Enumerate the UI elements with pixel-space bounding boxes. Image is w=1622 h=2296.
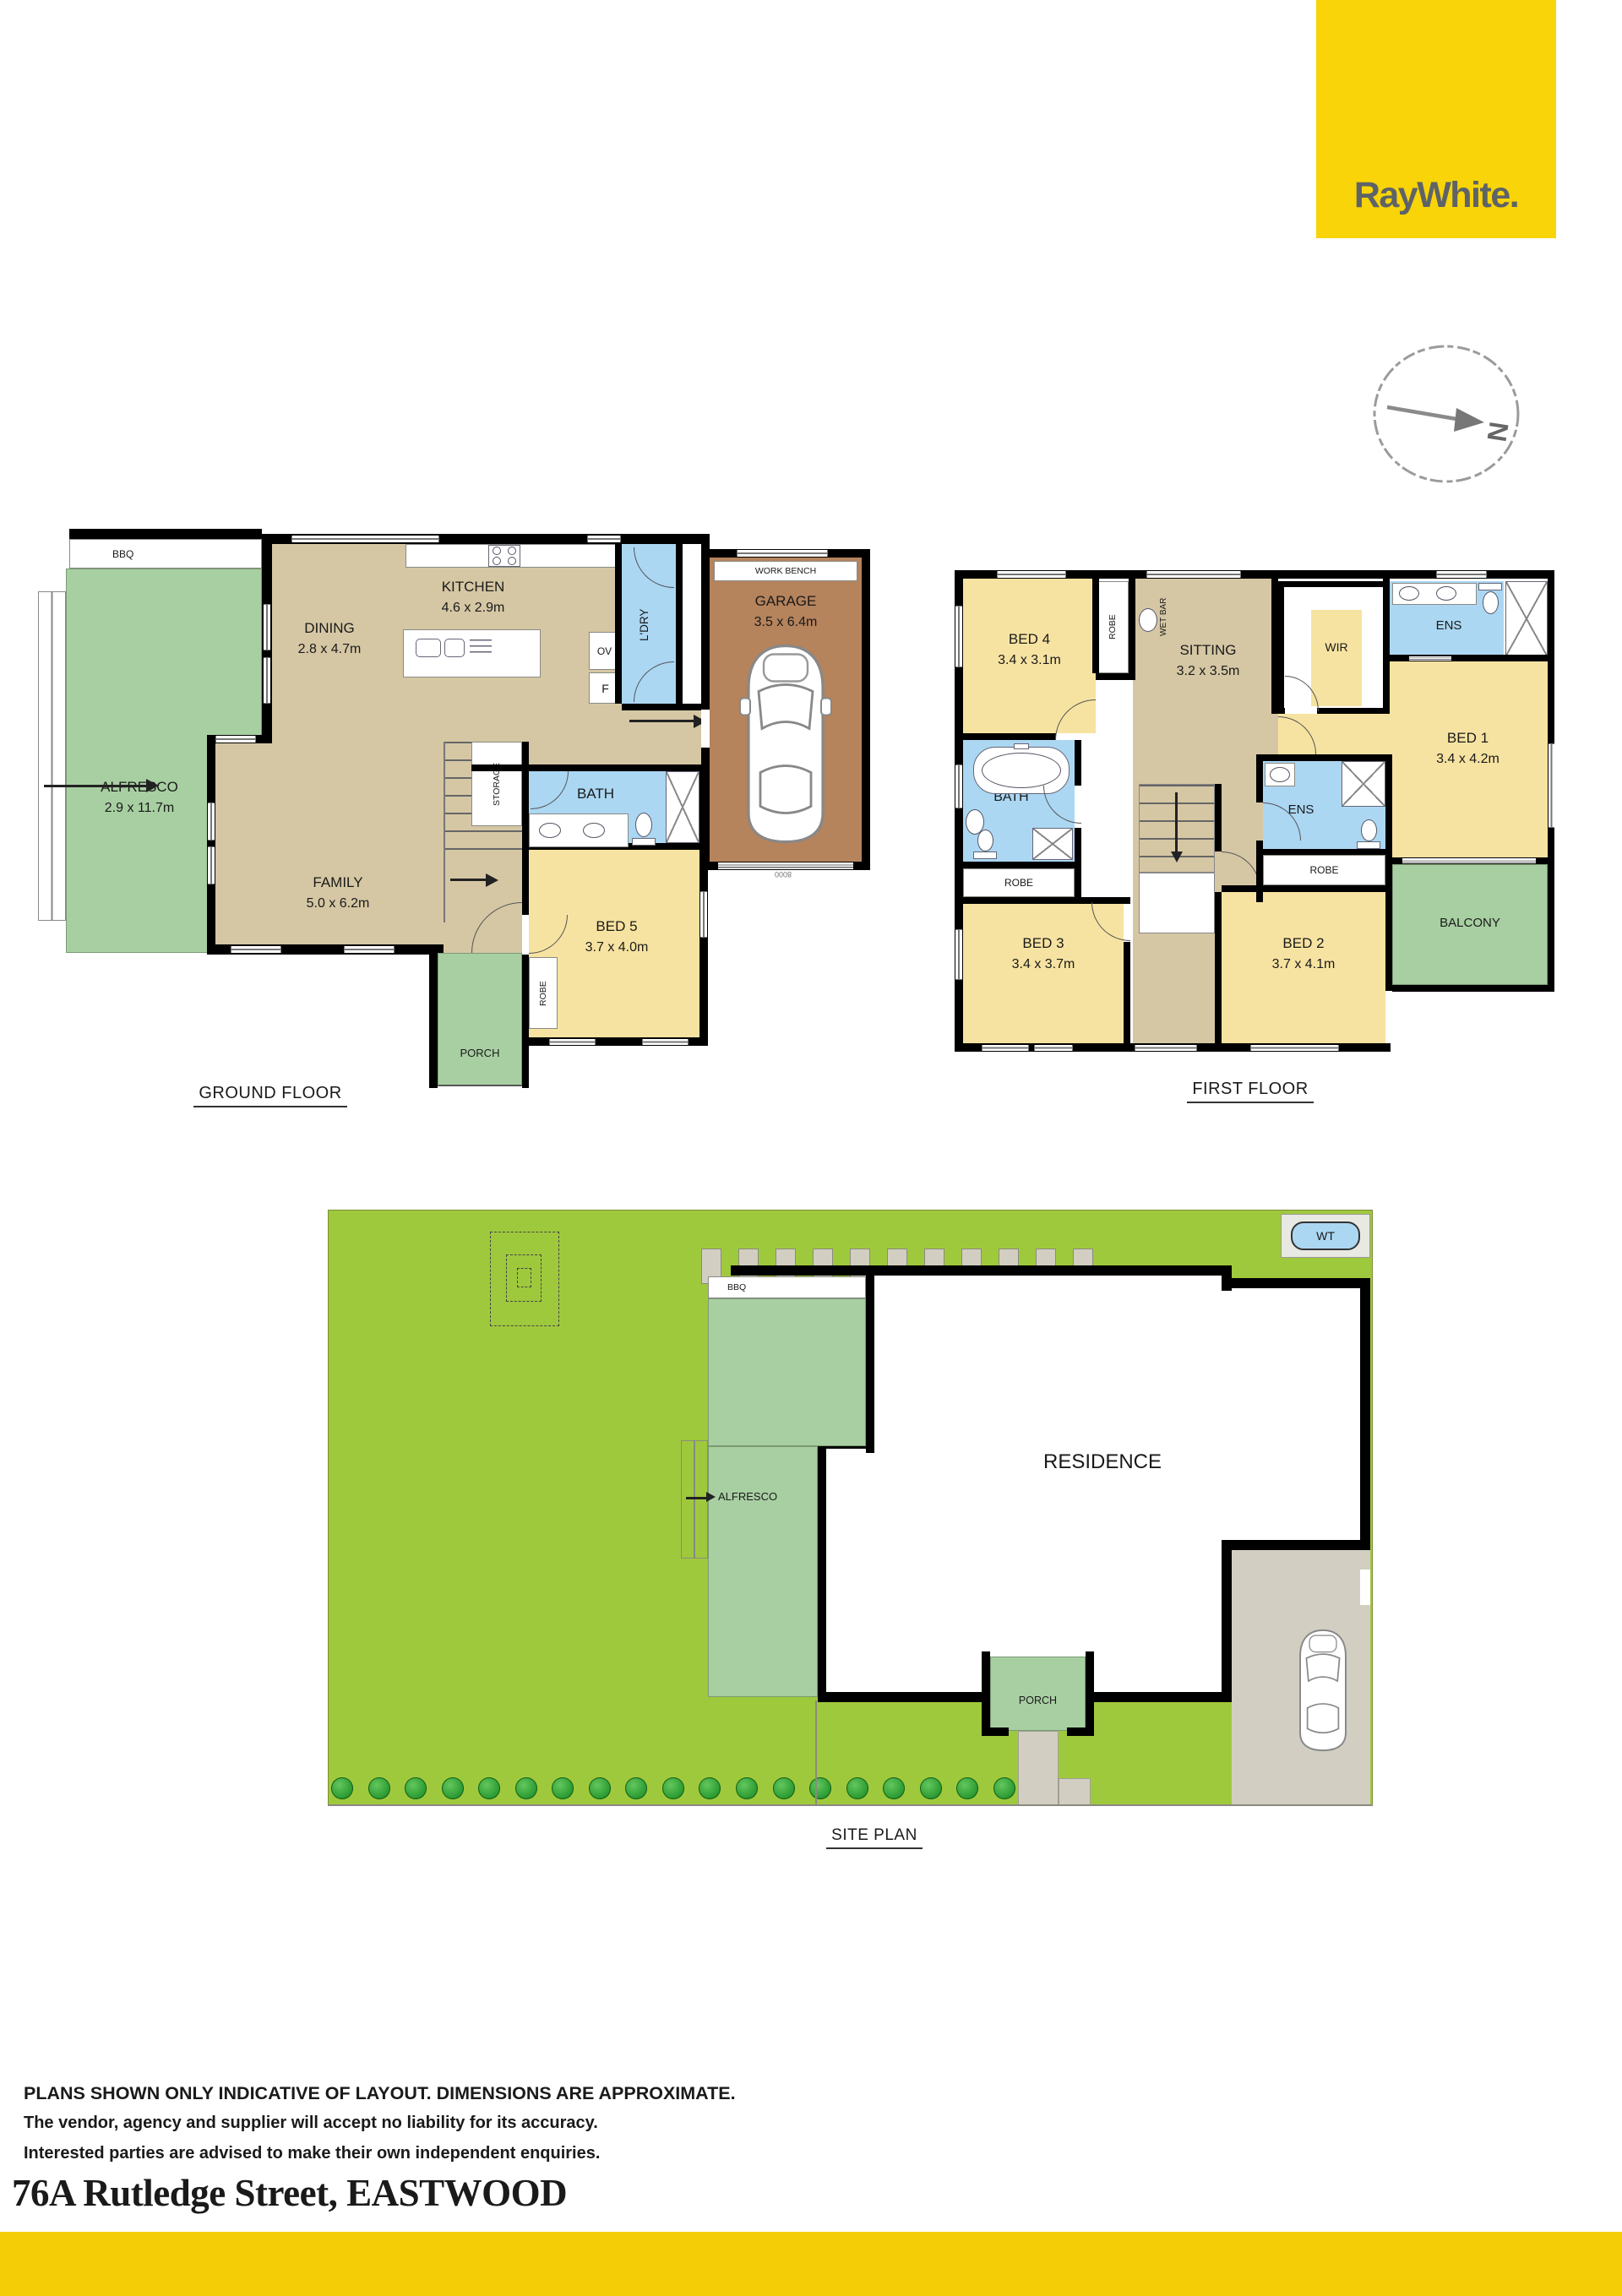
garage-door-label: 8000 bbox=[765, 870, 802, 879]
front-path-step bbox=[1059, 1778, 1091, 1805]
wall bbox=[471, 764, 708, 771]
bbq-bench: BBQ bbox=[69, 539, 262, 569]
toilet-icon bbox=[1483, 591, 1499, 614]
garage-entry-arrow bbox=[629, 720, 695, 722]
wall bbox=[1086, 1651, 1094, 1736]
stair-down-arrowhead-icon bbox=[1171, 851, 1183, 862]
wetbar-label: WET BAR bbox=[1159, 581, 1173, 653]
wir-label: WIR bbox=[1311, 639, 1362, 656]
wall bbox=[1383, 577, 1390, 714]
shower-icon bbox=[1342, 761, 1385, 807]
wall bbox=[963, 862, 1075, 868]
wall bbox=[731, 1265, 1232, 1276]
wall bbox=[1271, 577, 1278, 714]
garage-label: GARAGE 3.5 x 6.4m bbox=[710, 591, 862, 632]
site-bbq: BBQ bbox=[708, 1276, 866, 1298]
shrub-icon bbox=[699, 1777, 721, 1799]
bathtub-inner bbox=[982, 753, 1061, 788]
wall bbox=[866, 1276, 874, 1453]
window bbox=[215, 736, 256, 743]
window bbox=[587, 536, 621, 542]
tree-marker bbox=[490, 1232, 559, 1326]
stair-arrow bbox=[450, 879, 487, 881]
shrub-icon bbox=[773, 1777, 795, 1799]
car-icon bbox=[733, 640, 838, 847]
wall bbox=[955, 733, 1056, 740]
shrub-row bbox=[331, 1776, 1015, 1801]
window bbox=[291, 536, 439, 542]
shrub-icon bbox=[368, 1777, 390, 1799]
robe-label: ROBE bbox=[538, 960, 548, 1027]
raywhite-logo-text: RayWhite. bbox=[1316, 175, 1556, 216]
shower-icon bbox=[1505, 581, 1548, 656]
robe-label: ROBE bbox=[1309, 864, 1338, 876]
ground-floor-title: GROUND FLOOR bbox=[177, 1084, 363, 1107]
tap-icon bbox=[1014, 743, 1029, 749]
wall bbox=[1222, 1540, 1232, 1702]
window bbox=[737, 550, 828, 557]
wall bbox=[1075, 828, 1081, 902]
shrub-icon bbox=[331, 1777, 353, 1799]
floorplan-page: RayWhite. N BBQ ALFRESCO 2.9 x 11.7m bbox=[0, 0, 1622, 2296]
window bbox=[1250, 1045, 1339, 1051]
sink-icon bbox=[416, 639, 441, 657]
sink-icon bbox=[583, 823, 605, 838]
wall bbox=[1092, 577, 1099, 673]
window bbox=[997, 571, 1066, 578]
wall bbox=[1096, 673, 1135, 680]
shrub-icon bbox=[736, 1777, 758, 1799]
fridge-label: F bbox=[601, 682, 609, 695]
car-icon bbox=[1291, 1626, 1355, 1755]
shrub-icon bbox=[883, 1777, 905, 1799]
shower-icon bbox=[666, 771, 699, 843]
window bbox=[1135, 1045, 1197, 1051]
wall bbox=[676, 544, 683, 704]
shrub-icon bbox=[625, 1777, 647, 1799]
shrub-icon bbox=[662, 1777, 684, 1799]
wall bbox=[1385, 864, 1392, 991]
site-bbq-label: BBQ bbox=[727, 1282, 746, 1292]
toilet-tank-icon bbox=[1478, 583, 1502, 590]
toilet-tank-icon bbox=[632, 838, 656, 846]
window bbox=[982, 1045, 1029, 1051]
ens1-label: ENS bbox=[1421, 617, 1477, 635]
window bbox=[208, 803, 215, 841]
robe-bed3: ROBE bbox=[963, 868, 1075, 897]
wall bbox=[1360, 1278, 1370, 1550]
residence-garage-block bbox=[1232, 1286, 1369, 1548]
wall bbox=[862, 549, 870, 870]
wall bbox=[818, 1446, 826, 1702]
storage-label: STORAGE bbox=[492, 746, 502, 822]
window bbox=[1034, 1045, 1073, 1051]
shrub-icon bbox=[442, 1777, 464, 1799]
robe-label: ROBE bbox=[1108, 587, 1118, 667]
shrub-icon bbox=[809, 1777, 831, 1799]
window bbox=[1549, 743, 1554, 828]
window bbox=[264, 604, 270, 650]
wall bbox=[615, 544, 622, 704]
shower-icon bbox=[1032, 828, 1073, 860]
window bbox=[264, 657, 270, 704]
footer-bar bbox=[0, 2232, 1622, 2296]
water-tank-box: WT bbox=[1281, 1214, 1370, 1258]
wall bbox=[1256, 885, 1385, 892]
site-alfresco bbox=[708, 1298, 866, 1446]
wall bbox=[1232, 1540, 1370, 1550]
wall bbox=[1075, 740, 1081, 786]
sink-icon bbox=[1270, 767, 1290, 782]
shrub-icon bbox=[552, 1777, 574, 1799]
stair-down-arrow bbox=[1175, 792, 1178, 853]
wall bbox=[1392, 985, 1554, 992]
garage-door-gap bbox=[701, 710, 710, 748]
robe-bed2: ROBE bbox=[1263, 855, 1385, 885]
disclaimer-line3: Interested parties are advised to make t… bbox=[24, 2144, 1206, 2163]
wall bbox=[1256, 754, 1263, 803]
window bbox=[344, 946, 395, 953]
wall bbox=[522, 955, 529, 1046]
alfresco-label: ALFRESCO 2.9 x 11.7m bbox=[63, 777, 215, 818]
stair-arrowhead-icon bbox=[486, 873, 498, 887]
shrub-icon bbox=[846, 1777, 868, 1799]
work-bench-label: WORK BENCH bbox=[755, 566, 816, 576]
tree-marker-inner bbox=[517, 1268, 531, 1287]
sink-icon bbox=[539, 823, 561, 838]
sink-icon bbox=[444, 639, 465, 657]
sink-icon bbox=[1436, 586, 1456, 601]
window bbox=[642, 1039, 689, 1045]
sink-icon bbox=[1399, 586, 1419, 601]
oven-label: OV bbox=[597, 645, 612, 657]
site-entry-arrow bbox=[686, 1497, 708, 1499]
residence-body bbox=[866, 1276, 1232, 1446]
site-alfresco-steps bbox=[681, 1440, 708, 1559]
window bbox=[955, 929, 962, 980]
shrub-icon bbox=[405, 1777, 427, 1799]
kitchen-label: KITCHEN 4.6 x 2.9m bbox=[418, 577, 528, 618]
drainer-icon bbox=[470, 639, 492, 656]
fence-line bbox=[815, 1700, 817, 1804]
wir-floor bbox=[1311, 610, 1362, 706]
wetbar-sink-icon bbox=[1139, 608, 1157, 632]
window bbox=[700, 891, 707, 938]
gate-marker bbox=[1360, 1570, 1370, 1605]
shrub-icon bbox=[478, 1777, 500, 1799]
site-alfresco-label: ALFRESCO bbox=[718, 1490, 777, 1503]
water-tank-icon: WT bbox=[1291, 1221, 1360, 1250]
stairwell bbox=[1139, 873, 1215, 933]
window bbox=[955, 764, 962, 808]
wall bbox=[1256, 754, 1391, 761]
shrub-icon bbox=[515, 1777, 537, 1799]
shrub-icon bbox=[956, 1777, 978, 1799]
wall bbox=[1385, 754, 1392, 864]
compass-icon: N bbox=[1362, 336, 1535, 492]
compass-north-label: N bbox=[1481, 420, 1514, 443]
laundry-label: L'DRY bbox=[638, 583, 658, 667]
property-address: 76A Rutledge Street, EASTWOOD bbox=[12, 2171, 1363, 2215]
wall bbox=[429, 944, 438, 1088]
work-bench: WORK BENCH bbox=[714, 561, 857, 581]
raywhite-logo: RayWhite. bbox=[1316, 0, 1556, 238]
wall bbox=[1548, 864, 1554, 991]
wall bbox=[1232, 1278, 1370, 1288]
wall bbox=[1215, 784, 1222, 851]
window bbox=[955, 606, 962, 667]
cooktop-icon bbox=[488, 545, 520, 567]
wall bbox=[522, 742, 529, 915]
toilet-icon bbox=[635, 813, 652, 837]
wt-label: WT bbox=[1316, 1229, 1335, 1243]
porch-label: PORCH bbox=[438, 1047, 521, 1059]
wall bbox=[1256, 849, 1385, 855]
residence-label: RESIDENCE bbox=[980, 1448, 1225, 1477]
bed3-label: BED 3 3.4 x 3.7m bbox=[963, 933, 1124, 974]
window bbox=[549, 1039, 596, 1045]
first-floor-title: FIRST FLOOR bbox=[1174, 1080, 1326, 1103]
balcony-slider-door bbox=[1402, 858, 1536, 863]
bbq-label: BBQ bbox=[112, 548, 133, 560]
under-stair-storage: STORAGE bbox=[471, 742, 522, 826]
disclaimer-line2: The vendor, agency and supplier will acc… bbox=[24, 2114, 1206, 2133]
disclaimer-line1: PLANS SHOWN ONLY INDICATIVE OF LAYOUT. D… bbox=[24, 2083, 1206, 2104]
wall bbox=[982, 1727, 1009, 1736]
wall bbox=[522, 1046, 529, 1088]
wall bbox=[1067, 1727, 1094, 1736]
site-porch: PORCH bbox=[990, 1657, 1086, 1731]
porch-area: PORCH bbox=[438, 953, 522, 1086]
window bbox=[1146, 571, 1241, 578]
wall bbox=[1129, 577, 1135, 676]
site-entry-arrowhead-icon bbox=[706, 1492, 716, 1502]
window bbox=[1436, 571, 1487, 578]
garage-roller-door bbox=[718, 862, 853, 869]
toilet-icon bbox=[1361, 819, 1377, 841]
pantry-strip bbox=[683, 544, 701, 704]
boundary-line bbox=[328, 1804, 1373, 1806]
entry-arrow bbox=[44, 785, 148, 787]
front-path bbox=[1018, 1731, 1059, 1805]
window bbox=[208, 846, 215, 884]
site-plan-title: SITE PLAN bbox=[803, 1826, 946, 1849]
toilet-icon bbox=[977, 830, 993, 851]
wall bbox=[818, 1692, 990, 1702]
cavity-slider bbox=[1409, 656, 1451, 661]
toilet-tank-icon bbox=[973, 851, 997, 859]
wall bbox=[207, 735, 215, 953]
wall bbox=[1124, 942, 1130, 1043]
bed4-label: BED 4 3.4 x 3.1m bbox=[963, 629, 1096, 670]
wall bbox=[622, 704, 706, 710]
entry-arrowhead-icon bbox=[146, 779, 159, 792]
robe: ROBE bbox=[529, 957, 558, 1029]
shrub-icon bbox=[920, 1777, 942, 1799]
robe-bed4: ROBE bbox=[1096, 581, 1129, 673]
site-alfresco2 bbox=[708, 1446, 818, 1697]
bed1-label: BED 1 3.4 x 4.2m bbox=[1394, 728, 1542, 769]
family-label: FAMILY 5.0 x 6.2m bbox=[279, 873, 397, 913]
wall bbox=[963, 897, 1075, 904]
shrub-icon bbox=[993, 1777, 1015, 1799]
balcony-label: BALCONY bbox=[1392, 914, 1548, 933]
wall bbox=[1215, 892, 1222, 1043]
site-porch-label: PORCH bbox=[991, 1695, 1085, 1706]
wall bbox=[982, 1651, 990, 1736]
wall bbox=[1222, 1265, 1232, 1291]
bed2-label: BED 2 3.7 x 4.1m bbox=[1222, 933, 1385, 974]
dining-label: DINING 2.8 x 4.7m bbox=[279, 618, 380, 659]
window bbox=[231, 946, 281, 953]
toilet-tank-icon bbox=[1357, 841, 1380, 849]
wall bbox=[1086, 1692, 1232, 1702]
robe-label: ROBE bbox=[1004, 877, 1033, 889]
shrub-icon bbox=[589, 1777, 611, 1799]
alfresco-steps bbox=[38, 591, 66, 921]
wall bbox=[69, 529, 262, 539]
